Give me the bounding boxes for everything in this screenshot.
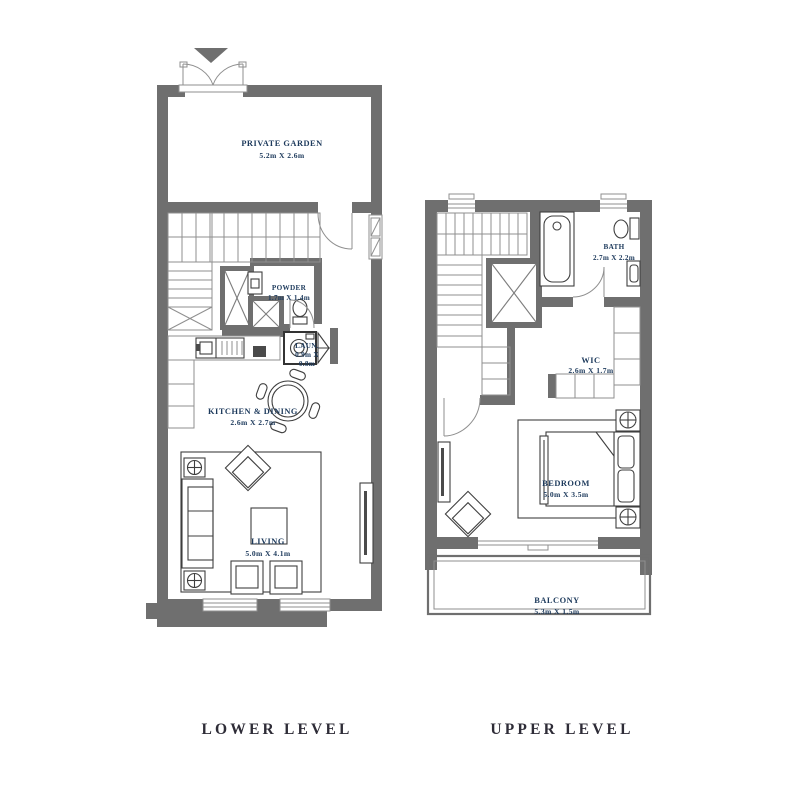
balcony-door xyxy=(478,541,598,550)
floorplan-canvas: PRIVATE GARDEN 5.2m X 2.6m POWDER 1.7m X… xyxy=(0,0,800,800)
bedroom-dims: 5.0m X 3.5m xyxy=(543,490,589,499)
accent-chair xyxy=(445,491,490,536)
living-dims: 5.0m X 4.1m xyxy=(245,549,291,558)
bathtub-icon xyxy=(540,212,574,286)
upper-level-plan: BATH 2.7m X 2.2m WIC 2.6m X 1.7m BEDROOM… xyxy=(425,194,652,616)
laundry-dims-line2: 0.8m xyxy=(299,360,315,368)
console xyxy=(438,442,450,502)
bedroom-label: BEDROOM xyxy=(542,479,590,488)
living-furniture xyxy=(181,445,373,594)
cooktop-icon xyxy=(253,346,266,357)
entry-double-door xyxy=(179,62,247,92)
armchair xyxy=(231,561,263,594)
kitchen-dining-label: KITCHEN & DINING xyxy=(208,407,298,416)
bath-label: BATH xyxy=(603,243,624,251)
nightstand-icon xyxy=(616,507,640,528)
powder-basin-icon xyxy=(248,272,262,294)
tv-console xyxy=(360,483,373,563)
entry-arrow-icon xyxy=(194,48,228,63)
plant-table-icon xyxy=(184,458,205,477)
bath-dims: 2.7m X 2.2m xyxy=(593,254,635,262)
wic-dims: 2.6m X 1.7m xyxy=(568,366,614,375)
toilet-icon xyxy=(614,218,639,239)
garden-label: PRIVATE GARDEN xyxy=(241,139,322,148)
living-label: LIVING xyxy=(251,537,285,546)
powder-label: POWDER xyxy=(272,284,307,292)
bedroom-furniture xyxy=(438,410,640,537)
balcony-dims: 5.3m X 1.5m xyxy=(534,607,580,616)
armchair xyxy=(270,561,302,594)
laundry-label: LAUN. xyxy=(295,342,319,350)
nightstand-icon xyxy=(616,410,640,431)
wic-label: WIC xyxy=(581,356,600,365)
balcony-label: BALCONY xyxy=(534,596,579,605)
lower-level-title: LOWER LEVEL xyxy=(201,721,352,738)
toilet-icon xyxy=(293,300,307,325)
bath-door xyxy=(573,267,604,297)
garden-door xyxy=(318,213,352,249)
laundry-dims-line1: 0.9m X xyxy=(295,351,319,359)
sink-icon xyxy=(627,261,640,286)
wic-closets xyxy=(556,307,640,398)
garden-dims: 5.2m X 2.6m xyxy=(259,151,305,160)
powder-dims: 1.7m X 1.4m xyxy=(268,294,310,302)
upper-shaft xyxy=(486,258,542,328)
floorplan-drawing: PRIVATE GARDEN 5.2m X 2.6m POWDER 1.7m X… xyxy=(0,0,800,800)
upper-level-title: UPPER LEVEL xyxy=(490,721,633,738)
balcony-railing xyxy=(428,556,650,614)
sofa xyxy=(182,479,213,568)
kitchen-dining-dims: 2.6m X 2.7m xyxy=(230,418,276,427)
lower-level-plan: PRIVATE GARDEN 5.2m X 2.6m POWDER 1.7m X… xyxy=(146,48,382,627)
plant-table-icon xyxy=(184,571,205,590)
bedroom-door xyxy=(444,398,480,436)
louver-vent xyxy=(369,215,382,259)
bifold-door xyxy=(318,333,329,363)
